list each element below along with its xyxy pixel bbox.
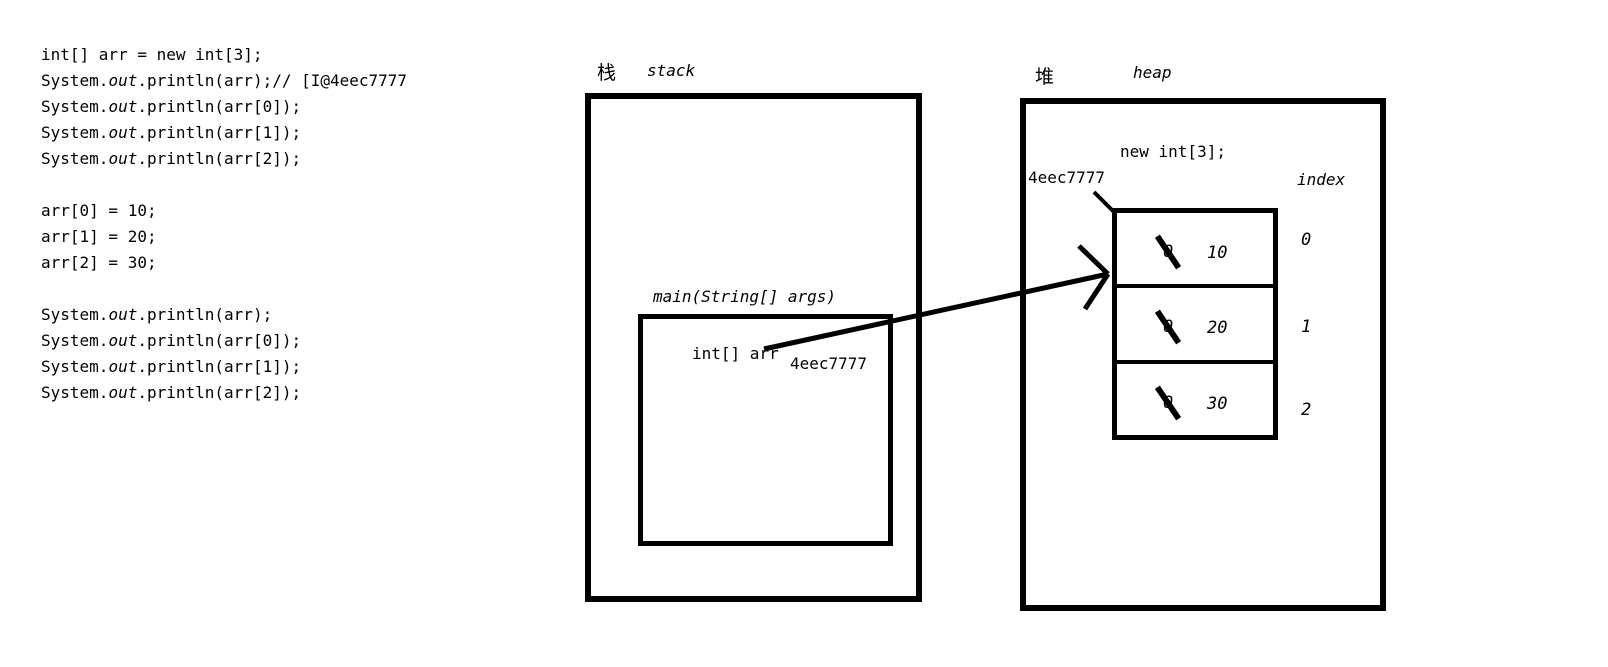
code-line: System.out.println(arr[2]); xyxy=(41,146,407,172)
array-variable-value: 4eec7777 xyxy=(790,354,867,373)
cell-value: 30 xyxy=(1207,393,1227,415)
code-line: arr[1] = 20; xyxy=(41,224,407,250)
heap-label-chinese: 堆 xyxy=(1035,62,1054,89)
code-line: System.out.println(arr[1]); xyxy=(41,354,407,380)
index-label: 2 xyxy=(1301,399,1311,421)
strikethrough-mark xyxy=(1155,235,1181,270)
old-default-value: 0 xyxy=(1163,241,1175,263)
java-code-listing: int[] arr = new int[3];System.out.printl… xyxy=(41,42,407,406)
code-line: System.out.println(arr);// [I@4eec7777 xyxy=(41,68,407,94)
code-line: System.out.println(arr[1]); xyxy=(41,120,407,146)
array-cell: 0 10 xyxy=(1117,213,1273,284)
code-line: System.out.println(arr[2]); xyxy=(41,380,407,406)
code-line xyxy=(41,276,407,302)
code-line: arr[2] = 30; xyxy=(41,250,407,276)
array-variable-label: int[] arr xyxy=(692,344,779,363)
array-cell: 0 30 xyxy=(1117,360,1273,435)
strikethrough-mark xyxy=(1155,385,1181,420)
code-line: System.out.println(arr[0]); xyxy=(41,328,407,354)
index-label: 0 xyxy=(1301,229,1311,251)
stack-label: stack xyxy=(647,61,695,80)
heap-address-label: 4eec7777 xyxy=(1028,168,1105,187)
strikethrough-mark xyxy=(1155,310,1181,345)
allocation-label: new int[3]; xyxy=(1120,142,1226,161)
code-line: System.out.println(arr); xyxy=(41,302,407,328)
code-line: arr[0] = 10; xyxy=(41,198,407,224)
stack-label-chinese: 栈 xyxy=(597,58,616,85)
index-label: 1 xyxy=(1301,316,1311,338)
old-default-value: 0 xyxy=(1163,316,1175,338)
main-frame-label: main(String[] args) xyxy=(653,287,836,306)
memory-diagram: int[] arr = new int[3];System.out.printl… xyxy=(0,0,1608,667)
heap-label: heap xyxy=(1133,63,1172,82)
index-header: index xyxy=(1297,170,1345,189)
array-cell: 0 20 xyxy=(1117,284,1273,359)
old-default-value: 0 xyxy=(1163,392,1175,414)
array-object-box: 0 10 0 20 0 30 xyxy=(1112,208,1278,440)
cell-value: 20 xyxy=(1207,317,1227,339)
cell-value: 10 xyxy=(1207,242,1227,264)
code-line: int[] arr = new int[3]; xyxy=(41,42,407,68)
code-line: System.out.println(arr[0]); xyxy=(41,94,407,120)
code-line xyxy=(41,172,407,198)
